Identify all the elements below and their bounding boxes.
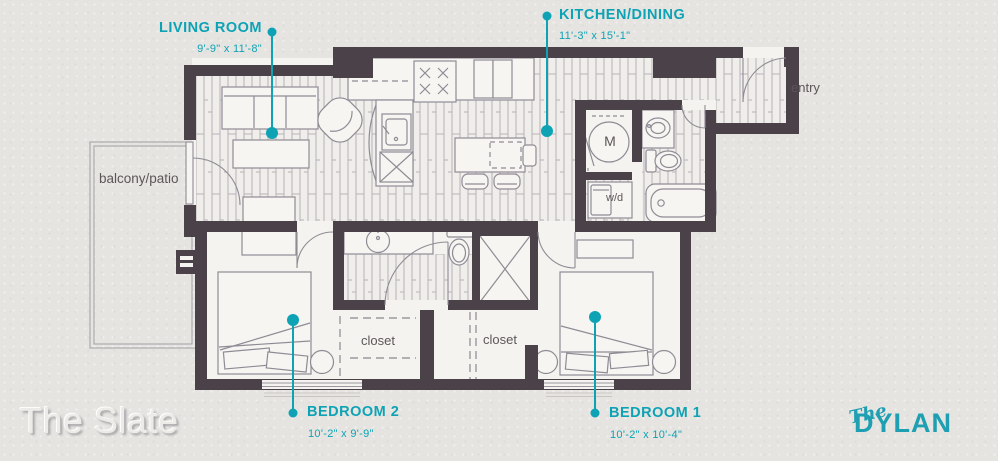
plan-name: The Slate bbox=[20, 400, 179, 442]
nightstand-right-bedroom-1 bbox=[653, 351, 676, 374]
refrigerator bbox=[474, 60, 512, 98]
mechanical-label: M bbox=[603, 133, 617, 149]
dresser-bedroom-2 bbox=[242, 231, 296, 255]
coffee-table bbox=[233, 140, 309, 168]
shower-shaft bbox=[480, 236, 530, 302]
room-dimensions-bedroom-2: 10'-2" x 9'-9" bbox=[308, 428, 374, 440]
kitchen-sink bbox=[382, 114, 411, 150]
room-label-bedroom-1: BEDROOM 1 bbox=[609, 406, 701, 422]
bed-1 bbox=[560, 272, 653, 375]
floor-plan-drawing bbox=[0, 0, 998, 461]
room-dimensions-bedroom-1: 10'-2" x 10'-4" bbox=[610, 429, 682, 441]
nightstand-bedroom-2 bbox=[311, 351, 334, 374]
room-dimensions-kitchen-dining: 11'-3" x 15'-1" bbox=[559, 30, 630, 42]
dishwasher bbox=[380, 152, 413, 182]
sofa bbox=[222, 87, 318, 129]
tv-console bbox=[243, 197, 295, 223]
room-label-living-room: LIVING ROOM bbox=[118, 21, 262, 37]
toilet-1 bbox=[646, 150, 681, 172]
closet-label-a: closet bbox=[361, 333, 395, 348]
stove bbox=[414, 61, 456, 102]
floor-plan-page: LIVING ROOM 9'-9" x 11'-8" KITCHEN/DININ… bbox=[0, 0, 998, 461]
room-label-kitchen-dining: KITCHEN/DINING bbox=[559, 8, 685, 24]
closet-label-b: closet bbox=[483, 332, 517, 347]
balcony-label: balcony/patio bbox=[99, 171, 179, 186]
bathroom-vanity-1 bbox=[642, 110, 674, 148]
room-label-bedroom-2: BEDROOM 2 bbox=[307, 405, 399, 421]
kitchen-island bbox=[455, 138, 536, 172]
brand-logo: The DYLAN bbox=[840, 394, 980, 439]
dresser-bedroom-1 bbox=[577, 240, 633, 258]
room-dimensions-living-room: 9'-9" x 11'-8" bbox=[118, 43, 262, 55]
washer-dryer-label: w/d bbox=[606, 192, 623, 204]
entry-label: entry bbox=[791, 80, 820, 95]
